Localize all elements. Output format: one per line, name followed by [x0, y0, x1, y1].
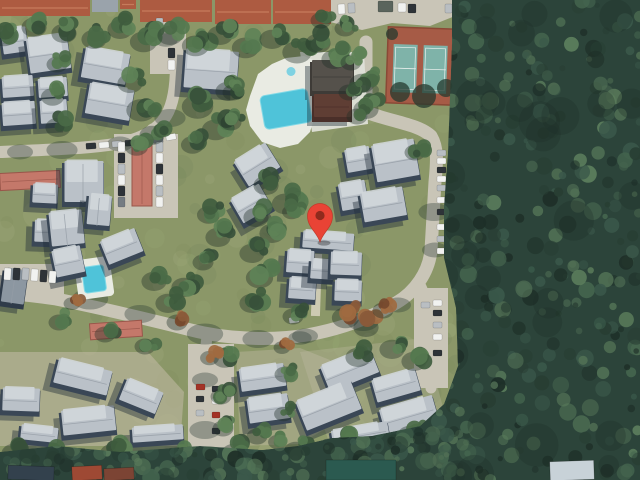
car: [433, 310, 442, 316]
car: [13, 268, 21, 280]
terracotta-roof: [215, 0, 271, 24]
car: [99, 142, 109, 149]
car: [338, 4, 345, 14]
car: [118, 175, 125, 185]
car: [156, 164, 163, 174]
building-roof: [0, 386, 41, 422]
car: [49, 271, 57, 283]
car: [118, 186, 125, 196]
satellite-map-view[interactable]: [0, 0, 640, 480]
car: [398, 3, 406, 12]
car: [4, 268, 12, 280]
car: [156, 197, 163, 207]
car: [212, 412, 220, 418]
terracotta-roof: [120, 0, 136, 9]
gray-roof: [92, 0, 118, 12]
car: [196, 384, 205, 390]
car: [156, 186, 163, 196]
car: [437, 167, 446, 173]
car: [421, 302, 430, 308]
car: [433, 350, 442, 356]
car: [40, 270, 48, 282]
car: [168, 48, 175, 58]
building-roof: [8, 465, 54, 480]
car: [437, 150, 446, 156]
terracotta-roof: [0, 0, 90, 16]
building-roof: [72, 465, 103, 480]
car: [445, 4, 452, 13]
car: [156, 175, 163, 185]
pin-dot: [315, 211, 324, 220]
car: [408, 4, 416, 13]
car: [348, 3, 355, 13]
car: [433, 334, 442, 340]
satellite-imagery: [0, 0, 640, 480]
car: [168, 60, 175, 70]
car: [433, 322, 442, 328]
car: [378, 1, 393, 12]
car: [118, 164, 125, 174]
car: [86, 143, 96, 150]
car: [437, 158, 446, 164]
tennis-courts: [386, 27, 457, 108]
car: [118, 142, 125, 152]
car: [437, 185, 446, 191]
spa-pool: [287, 67, 296, 76]
car: [31, 269, 39, 281]
car: [437, 176, 446, 182]
car: [22, 268, 30, 280]
building-roof: [104, 467, 135, 480]
building-roof: [550, 460, 595, 480]
car: [196, 410, 204, 416]
car: [156, 153, 163, 163]
car: [118, 197, 125, 207]
car: [118, 153, 125, 163]
car: [196, 396, 204, 402]
building-roof: [326, 460, 396, 480]
car: [433, 300, 442, 306]
